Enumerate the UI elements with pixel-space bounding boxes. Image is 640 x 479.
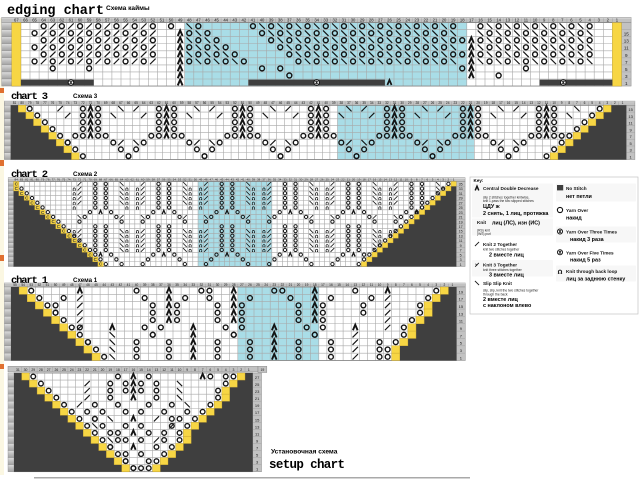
svg-text:13: 13 [530, 101, 534, 105]
svg-text:45: 45 [286, 101, 290, 105]
svg-text:71: 71 [83, 177, 87, 181]
svg-text:56: 56 [203, 101, 207, 105]
svg-text:27: 27 [240, 283, 244, 287]
svg-text:21: 21 [289, 283, 293, 287]
svg-text:52: 52 [183, 177, 187, 181]
svg-text:67: 67 [104, 177, 108, 181]
svg-text:ЦДУ ж: ЦДУ ж [483, 204, 500, 210]
svg-text:25: 25 [62, 368, 66, 372]
svg-text:48: 48 [204, 177, 208, 181]
svg-text:Yarn Over Three Times: Yarn Over Three Times [566, 230, 617, 235]
svg-text:31: 31 [459, 192, 463, 196]
svg-text:12: 12 [515, 17, 520, 22]
svg-text:18: 18 [460, 17, 465, 22]
svg-text:Knit 3 Together: Knit 3 Together [483, 263, 517, 268]
svg-text:9: 9 [561, 101, 563, 105]
svg-text:14: 14 [522, 101, 526, 105]
svg-text:Key:: Key: [474, 178, 484, 183]
svg-text:15: 15 [378, 177, 382, 181]
svg-text:42: 42 [119, 283, 123, 287]
svg-text:50: 50 [194, 177, 198, 181]
svg-text:78: 78 [36, 101, 40, 105]
svg-text:20: 20 [476, 101, 480, 105]
svg-text:Central Double Decrease: Central Double Decrease [483, 186, 539, 191]
svg-text:65: 65 [115, 177, 119, 181]
svg-text:25: 25 [438, 101, 442, 105]
svg-text:лиц за заднюю стенку: лиц за заднюю стенку [566, 276, 625, 282]
svg-text:81: 81 [13, 101, 17, 105]
svg-text:2 вместе лиц: 2 вместе лиц [489, 253, 525, 259]
svg-text:Установочная схема: Установочная схема [271, 449, 338, 456]
svg-text:11: 11 [624, 46, 629, 51]
svg-text:18: 18 [116, 368, 120, 372]
svg-text:12: 12 [537, 101, 541, 105]
svg-text:26: 26 [54, 368, 58, 372]
svg-text:59: 59 [180, 101, 184, 105]
svg-text:11: 11 [399, 177, 402, 181]
svg-text:13: 13 [155, 368, 159, 372]
svg-text:25: 25 [256, 283, 260, 287]
svg-text:17: 17 [459, 297, 464, 302]
svg-text:56: 56 [162, 177, 166, 181]
svg-text:21: 21 [255, 396, 260, 401]
svg-text:35: 35 [362, 101, 366, 105]
svg-text:73: 73 [74, 101, 78, 105]
svg-text:62: 62 [157, 101, 161, 105]
svg-text:No Stitch: No Stitch [566, 186, 587, 191]
svg-text:23: 23 [336, 177, 340, 181]
svg-text:49: 49 [178, 17, 183, 22]
svg-text:15: 15 [487, 17, 492, 22]
svg-text:29: 29 [360, 17, 365, 22]
svg-text:46: 46 [205, 17, 210, 22]
svg-text:39: 39 [269, 17, 274, 22]
svg-text:67: 67 [14, 17, 19, 22]
svg-text:34: 34 [278, 177, 282, 181]
svg-text:41: 41 [127, 283, 131, 287]
svg-text:19: 19 [305, 283, 309, 287]
svg-text:10: 10 [552, 101, 556, 105]
svg-text:8: 8 [194, 368, 196, 372]
svg-text:40: 40 [260, 17, 265, 22]
svg-text:7: 7 [625, 60, 628, 65]
svg-text:4: 4 [225, 368, 227, 372]
svg-text:17: 17 [368, 177, 372, 181]
svg-text:63: 63 [150, 101, 154, 105]
svg-text:нет петли: нет петли [566, 194, 592, 200]
svg-text:54: 54 [173, 177, 177, 181]
svg-text:69: 69 [104, 101, 108, 105]
svg-text:14: 14 [496, 17, 501, 22]
svg-text:5: 5 [460, 253, 462, 257]
svg-text:32: 32 [333, 17, 338, 22]
svg-text:62: 62 [60, 17, 65, 22]
svg-text:44: 44 [225, 177, 229, 181]
svg-text:49: 49 [199, 177, 203, 181]
svg-text:20: 20 [101, 368, 105, 372]
svg-text:17: 17 [321, 283, 325, 287]
svg-text:58: 58 [152, 177, 156, 181]
svg-text:53: 53 [29, 283, 33, 287]
svg-text:60: 60 [78, 17, 83, 22]
svg-text:лиц (ЛС), изн (ИС): лиц (ЛС), изн (ИС) [492, 221, 540, 227]
svg-text:30: 30 [299, 177, 303, 181]
svg-text:49: 49 [256, 101, 260, 105]
svg-text:38: 38 [257, 177, 261, 181]
svg-text:накид 5 раз: накид 5 раз [570, 257, 601, 263]
svg-text:40: 40 [246, 177, 250, 181]
svg-text:12: 12 [394, 177, 398, 181]
svg-text:31: 31 [294, 177, 298, 181]
svg-text:28: 28 [369, 17, 374, 22]
svg-text:31: 31 [16, 368, 20, 372]
svg-text:15: 15 [139, 368, 143, 372]
svg-text:с наклоном влево: с наклоном влево [483, 303, 532, 309]
svg-text:13: 13 [624, 39, 630, 44]
svg-text:25: 25 [396, 17, 401, 22]
svg-text:3: 3 [233, 368, 235, 372]
svg-text:57: 57 [195, 101, 199, 105]
svg-text:34: 34 [370, 101, 374, 105]
svg-text:42: 42 [236, 177, 240, 181]
svg-text:1: 1 [248, 368, 250, 372]
svg-text:16: 16 [507, 101, 511, 105]
svg-text:37: 37 [262, 177, 266, 181]
svg-text:55: 55 [210, 101, 214, 105]
svg-text:25: 25 [255, 382, 260, 387]
svg-text:16: 16 [329, 283, 333, 287]
svg-text:31: 31 [208, 283, 212, 287]
svg-text:33: 33 [191, 283, 195, 287]
svg-text:22: 22 [461, 101, 465, 105]
svg-text:43: 43 [110, 283, 114, 287]
svg-text:10: 10 [533, 17, 538, 22]
svg-text:55: 55 [13, 283, 17, 287]
svg-text:64: 64 [120, 177, 124, 181]
svg-text:43: 43 [302, 101, 306, 105]
svg-text:40: 40 [324, 101, 328, 105]
svg-text:29: 29 [224, 283, 228, 287]
svg-text:15: 15 [459, 304, 464, 309]
svg-text:13: 13 [505, 17, 510, 22]
svg-text:51: 51 [160, 17, 165, 22]
svg-text:3: 3 [460, 258, 462, 262]
svg-text:14: 14 [345, 283, 349, 287]
svg-text:23: 23 [272, 283, 276, 287]
svg-text:24: 24 [405, 17, 410, 22]
svg-text:76: 76 [57, 177, 61, 181]
svg-text:Knit: Knit [477, 220, 487, 225]
svg-text:18: 18 [492, 101, 496, 105]
svg-text:13: 13 [459, 234, 463, 238]
svg-text:36: 36 [268, 177, 272, 181]
svg-text:17: 17 [124, 368, 128, 372]
svg-text:52: 52 [38, 283, 42, 287]
svg-text:17: 17 [469, 17, 474, 22]
svg-text:29: 29 [459, 197, 463, 201]
svg-text:47: 47 [210, 177, 214, 181]
svg-text:32: 32 [289, 177, 293, 181]
svg-text:64: 64 [142, 101, 146, 105]
svg-text:46: 46 [86, 283, 90, 287]
svg-text:76: 76 [51, 101, 55, 105]
svg-text:1: 1 [460, 263, 462, 267]
svg-text:34: 34 [183, 283, 187, 287]
svg-text:38: 38 [151, 283, 155, 287]
svg-text:19: 19 [255, 403, 260, 408]
svg-text:19: 19 [484, 101, 488, 105]
svg-text:24: 24 [70, 368, 74, 372]
svg-text:8: 8 [568, 101, 570, 105]
svg-text:27: 27 [47, 368, 51, 372]
svg-text:51: 51 [188, 177, 192, 181]
svg-text:55: 55 [167, 177, 171, 181]
svg-text:32: 32 [385, 101, 389, 105]
svg-text:59: 59 [146, 177, 150, 181]
svg-text:22: 22 [424, 17, 429, 22]
svg-text:Knit through back loop: Knit through back loop [566, 269, 617, 274]
svg-text:74: 74 [66, 101, 70, 105]
svg-text:39: 39 [143, 283, 147, 287]
svg-text:37: 37 [347, 101, 351, 105]
svg-text:36: 36 [355, 101, 359, 105]
svg-text:82: 82 [25, 177, 29, 181]
svg-text:37: 37 [287, 17, 292, 22]
svg-text:15: 15 [337, 283, 341, 287]
svg-text:4: 4 [599, 101, 601, 105]
svg-text:9: 9 [625, 53, 628, 58]
svg-text:83: 83 [20, 177, 24, 181]
svg-text:58: 58 [188, 101, 192, 105]
svg-text:19: 19 [459, 289, 464, 294]
svg-text:41: 41 [241, 177, 245, 181]
svg-text:23: 23 [255, 389, 260, 394]
svg-text:67: 67 [119, 101, 123, 105]
svg-text:51: 51 [46, 283, 50, 287]
svg-text:25: 25 [325, 177, 329, 181]
svg-text:24: 24 [331, 177, 335, 181]
svg-text:79: 79 [28, 101, 32, 105]
svg-text:22: 22 [341, 177, 345, 181]
svg-text:Yarn Over: Yarn Over [566, 208, 588, 213]
svg-text:66: 66 [127, 101, 131, 105]
svg-text:29: 29 [31, 368, 35, 372]
svg-text:setup chart: setup chart [269, 458, 345, 472]
svg-text:(WS) purl: (WS) purl [477, 232, 491, 236]
svg-text:Slip Slip Knit: Slip Slip Knit [483, 281, 512, 286]
svg-text:53: 53 [141, 17, 146, 22]
svg-text:50: 50 [169, 17, 174, 22]
svg-text:45: 45 [220, 177, 224, 181]
svg-text:11: 11 [524, 17, 529, 22]
svg-text:74: 74 [67, 177, 71, 181]
svg-text:5: 5 [591, 101, 593, 105]
svg-text:4: 4 [427, 283, 429, 287]
svg-text:23: 23 [459, 211, 463, 215]
svg-text:63: 63 [125, 177, 129, 181]
svg-text:48: 48 [70, 283, 74, 287]
svg-text:10: 10 [178, 368, 182, 372]
svg-text:15: 15 [459, 230, 463, 234]
svg-text:64: 64 [41, 17, 46, 22]
svg-text:56: 56 [114, 17, 119, 22]
svg-text:12: 12 [162, 368, 166, 372]
svg-text:65: 65 [134, 101, 138, 105]
svg-text:27: 27 [315, 177, 319, 181]
svg-text:47: 47 [271, 101, 275, 105]
svg-text:73: 73 [73, 177, 77, 181]
svg-text:77: 77 [43, 101, 47, 105]
svg-text:16: 16 [478, 17, 483, 22]
svg-text:36: 36 [296, 17, 301, 22]
svg-text:8: 8 [395, 283, 397, 287]
svg-text:48: 48 [264, 101, 268, 105]
svg-text:34: 34 [314, 17, 319, 22]
svg-text:28: 28 [416, 101, 420, 105]
svg-text:Yarn Over Five Times: Yarn Over Five Times [566, 250, 614, 255]
svg-text:накид: накид [566, 215, 582, 221]
svg-text:23: 23 [414, 17, 419, 22]
svg-text:57: 57 [157, 177, 161, 181]
svg-text:2: 2 [614, 101, 616, 105]
svg-text:24: 24 [446, 101, 450, 105]
svg-text:knit two stitches together: knit two stitches together [483, 247, 520, 251]
svg-text:46: 46 [215, 177, 219, 181]
svg-text:77: 77 [51, 177, 55, 181]
svg-text:10: 10 [378, 283, 382, 287]
svg-text:26: 26 [387, 17, 392, 22]
svg-text:80: 80 [36, 177, 40, 181]
svg-text:53: 53 [178, 177, 182, 181]
svg-text:17: 17 [499, 101, 503, 105]
svg-text:80: 80 [20, 101, 24, 105]
svg-text:17: 17 [459, 225, 463, 229]
svg-text:44: 44 [223, 17, 228, 22]
svg-text:27: 27 [423, 101, 427, 105]
svg-text:65: 65 [32, 17, 37, 22]
svg-text:35: 35 [273, 177, 277, 181]
svg-text:61: 61 [69, 17, 74, 22]
svg-text:52: 52 [151, 17, 156, 22]
svg-text:11: 11 [370, 283, 374, 287]
svg-text:45: 45 [94, 283, 98, 287]
svg-text:39: 39 [252, 177, 256, 181]
svg-text:7: 7 [403, 283, 405, 287]
svg-text:26: 26 [248, 283, 252, 287]
svg-text:27: 27 [255, 375, 260, 380]
svg-text:23: 23 [78, 368, 82, 372]
svg-text:53: 53 [226, 101, 230, 105]
svg-text:26: 26 [320, 177, 324, 181]
svg-text:18: 18 [362, 177, 366, 181]
svg-text:12: 12 [362, 283, 366, 287]
svg-text:42: 42 [242, 17, 247, 22]
svg-text:29: 29 [408, 101, 412, 105]
svg-text:28: 28 [310, 177, 314, 181]
svg-text:20: 20 [352, 177, 356, 181]
svg-text:19: 19 [261, 368, 265, 372]
svg-text:14: 14 [383, 177, 387, 181]
svg-text:38: 38 [278, 17, 283, 22]
svg-text:38: 38 [340, 101, 344, 105]
svg-text:5: 5 [625, 67, 628, 72]
svg-text:15: 15 [628, 107, 633, 112]
svg-text:32: 32 [200, 283, 204, 287]
svg-text:30: 30 [351, 17, 356, 22]
svg-text:30: 30 [216, 283, 220, 287]
svg-text:5: 5 [217, 368, 219, 372]
svg-text:70: 70 [96, 101, 100, 105]
svg-text:1: 1 [452, 283, 454, 287]
svg-text:Схема каймы: Схема каймы [106, 4, 150, 12]
svg-text:13: 13 [353, 283, 357, 287]
svg-text:75: 75 [58, 101, 62, 105]
svg-text:62: 62 [130, 177, 134, 181]
svg-text:50: 50 [54, 283, 58, 287]
svg-text:14: 14 [147, 368, 151, 372]
svg-text:2: 2 [240, 368, 242, 372]
svg-text:2: 2 [443, 283, 445, 287]
svg-text:68: 68 [99, 177, 103, 181]
svg-text:68: 68 [112, 101, 116, 105]
svg-text:9: 9 [186, 368, 188, 372]
svg-text:1: 1 [625, 81, 628, 86]
svg-text:52: 52 [233, 101, 237, 105]
svg-text:6: 6 [584, 101, 586, 105]
svg-text:knit 1,pass the two slipped st: knit 1,pass the two slipped stitches [483, 199, 534, 203]
svg-text:47: 47 [196, 17, 201, 22]
svg-text:1: 1 [622, 101, 624, 105]
svg-text:16: 16 [373, 177, 377, 181]
svg-text:30: 30 [400, 101, 404, 105]
svg-text:63: 63 [50, 17, 55, 22]
svg-text:3 вместе лиц: 3 вместе лиц [489, 273, 525, 279]
svg-text:3: 3 [435, 283, 437, 287]
svg-text:54: 54 [218, 101, 222, 105]
svg-text:50: 50 [248, 101, 252, 105]
svg-text:39: 39 [332, 101, 336, 105]
svg-text:46: 46 [279, 101, 283, 105]
svg-text:66: 66 [109, 177, 113, 181]
svg-text:72: 72 [78, 177, 82, 181]
svg-text:58: 58 [96, 17, 101, 22]
svg-text:79: 79 [41, 177, 45, 181]
svg-text:54: 54 [21, 283, 25, 287]
svg-text:33: 33 [323, 17, 328, 22]
svg-text:19: 19 [357, 177, 361, 181]
svg-text:13: 13 [628, 114, 633, 119]
svg-text:13: 13 [459, 311, 464, 316]
svg-text:6: 6 [209, 368, 211, 372]
svg-text:66: 66 [23, 17, 28, 22]
svg-text:78: 78 [46, 177, 50, 181]
svg-text:70: 70 [88, 177, 92, 181]
svg-text:9: 9 [460, 244, 462, 248]
svg-text:44: 44 [102, 283, 106, 287]
svg-text:43: 43 [231, 177, 235, 181]
svg-text:10: 10 [405, 177, 409, 181]
svg-text:43: 43 [232, 17, 237, 22]
svg-text:24: 24 [264, 283, 268, 287]
svg-text:75: 75 [62, 177, 66, 181]
svg-text:накид 3 раза: накид 3 раза [570, 237, 605, 243]
svg-text:26: 26 [431, 101, 435, 105]
svg-text:25: 25 [459, 206, 463, 210]
svg-text:19: 19 [108, 368, 112, 372]
svg-text:3: 3 [606, 101, 608, 105]
svg-text:21: 21 [433, 17, 438, 22]
svg-text:69: 69 [94, 177, 98, 181]
